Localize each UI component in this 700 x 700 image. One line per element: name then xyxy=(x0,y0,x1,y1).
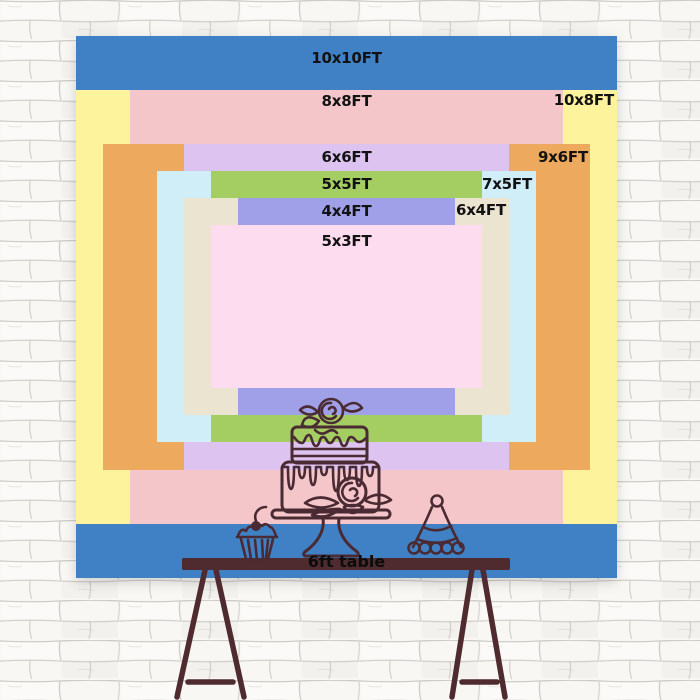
size-label-5x3: 5x3FT xyxy=(76,232,617,250)
table-length-label: 6ft table xyxy=(76,552,617,571)
size-label-8x8: 8x8FT xyxy=(76,92,617,110)
size-label-10x8: 10x8FT xyxy=(554,91,614,109)
size-label-4x4: 4x4FT xyxy=(76,202,617,220)
size-label-6x4: 6x4FT xyxy=(456,201,506,219)
size-label-6x6: 6x6FT xyxy=(76,148,617,166)
size-label-5x5: 5x5FT xyxy=(76,175,617,193)
size-label-7x5: 7x5FT xyxy=(482,175,532,193)
size-label-10x10: 10x10FT xyxy=(76,49,617,67)
backdrop-size-chart: 10x10FT 8x8FT 10x8FT 6x6FT 9x6FT 5x5FT 7… xyxy=(76,36,617,578)
size-label-9x6: 9x6FT xyxy=(538,148,588,166)
